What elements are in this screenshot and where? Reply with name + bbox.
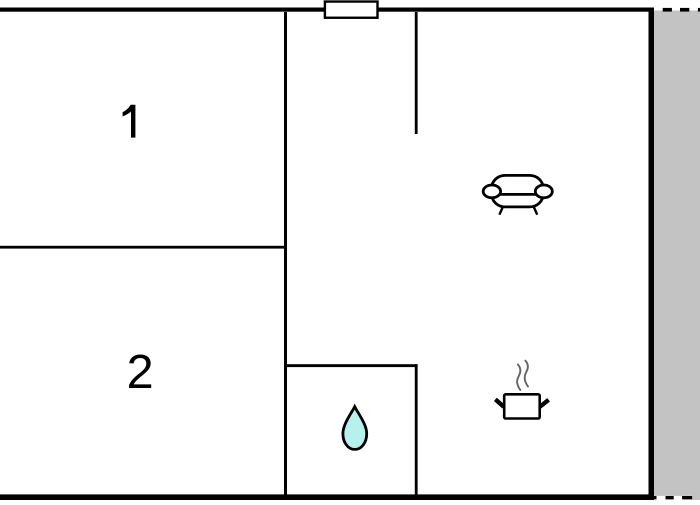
svg-text:2: 2 [127,345,154,399]
